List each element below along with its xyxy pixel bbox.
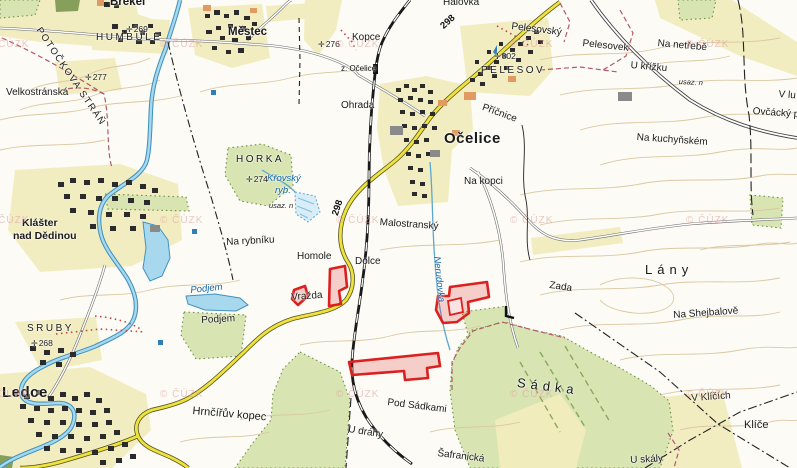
- map-label-ohrada: Ohrada: [341, 101, 374, 111]
- elevation-value: 302: [502, 51, 516, 61]
- map-label-horka: HORKA: [236, 155, 284, 165]
- map-label-podjem: Podjem: [190, 283, 223, 296]
- cuzk-watermark: © ČÚZK: [686, 390, 729, 400]
- cuzk-watermark: © ČÚZK: [336, 40, 379, 50]
- cuzk-watermark: © ČÚZK: [510, 40, 553, 50]
- map-label-hrn-v-kopec: Hrnčířův kopec: [192, 406, 267, 423]
- map-label-pelesovek: Pelesovek: [582, 39, 629, 54]
- elevation-value: 274: [254, 174, 268, 184]
- cuzk-watermark: © ČÚZK: [0, 390, 29, 400]
- cuzk-watermark: © ČÚZK: [160, 40, 203, 50]
- elevation-value: 269: [134, 24, 148, 34]
- map-label-nerudovka: Nerudovka: [432, 256, 446, 303]
- cuzk-watermark: © ČÚZK: [686, 216, 729, 226]
- map-label-na-kuchy-sk-m: Na kuchyňském: [636, 133, 708, 148]
- map-label-vra-da: Vražda: [291, 291, 323, 303]
- cuzk-watermark: © ČÚZK: [160, 216, 203, 226]
- map-label-p-nice: Příčnice: [481, 103, 518, 125]
- elevation-cross-icon: ✛: [85, 73, 92, 82]
- map-label-usaz-n: usaz. n: [679, 78, 704, 87]
- map-label-humbule: HUMBULE: [96, 33, 162, 43]
- map-label-halovka: Halovka: [443, 0, 479, 8]
- map-label-m-stec: Městec: [228, 27, 267, 39]
- elevation-point-268: ✛268: [31, 339, 53, 348]
- map-label-afranick: Šafranická: [437, 449, 485, 465]
- cuzk-watermark: © ČÚZK: [0, 40, 29, 50]
- elevation-cross-icon: ✛: [318, 40, 325, 49]
- map-label-na-rybn-ku: Na rybníku: [226, 235, 275, 248]
- elevation-value: 268: [39, 338, 53, 348]
- map-label-podjem: Podjem: [201, 314, 235, 326]
- map-label-usaz-n: usaz. n: [269, 202, 293, 210]
- cuzk-watermark: © ČÚZK: [510, 216, 553, 226]
- map-label-pelesovsk: Pelesovský: [511, 22, 562, 38]
- elevation-cross-icon: ✛: [494, 52, 501, 61]
- map-label-sruby: SRUBY: [27, 324, 74, 334]
- elevation-cross-icon: ✛: [31, 339, 38, 348]
- cuzk-watermark: © ČÚZK: [686, 40, 729, 50]
- cuzk-watermark: © ČÚZK: [160, 390, 203, 400]
- map-label-u-k-ku: U křížku: [630, 61, 667, 74]
- map-viewport[interactable]: BrekelHUMBULEMěstecPOTOČKOVA STRÁŇVelkos…: [0, 0, 797, 468]
- map-label-na-kopci: Na kopci: [464, 177, 503, 187]
- elevation-point-277: ✛277: [85, 73, 107, 82]
- map-label-malostransk: Malostranský: [379, 218, 438, 232]
- map-label-v-lu: V lu: [778, 90, 796, 101]
- elevation-point-302: ✛302: [494, 52, 516, 61]
- map-label-velkostr-nsk: Velkostránská: [6, 88, 68, 98]
- cuzk-watermark: © ČÚZK: [0, 216, 29, 226]
- map-label-kl-e: Klíče: [744, 420, 768, 431]
- elevation-value: 277: [93, 72, 107, 82]
- map-label-zada: Zada: [549, 281, 573, 294]
- cuzk-watermark: © ČÚZK: [510, 390, 553, 400]
- map-label-l-ny: Lány: [645, 263, 693, 276]
- map-label-pod-s-dkami: Pod Sádkami: [387, 398, 447, 415]
- map-label-pelesov: PELESOV: [481, 66, 545, 76]
- map-label-brekel: Brekel: [110, 0, 145, 9]
- elevation-cross-icon: ✛: [126, 25, 133, 34]
- map-label-ryb: ryb.: [275, 186, 291, 196]
- road-number-298-0: 298: [439, 13, 457, 31]
- map-label-k-ovsk: Křovský: [267, 174, 301, 184]
- elevation-cross-icon: ✛: [246, 175, 253, 184]
- cuzk-watermark: © ČÚZK: [336, 390, 379, 400]
- map-labels-layer: BrekelHUMBULEMěstecPOTOČKOVA STRÁŇVelkos…: [0, 0, 797, 468]
- elevation-point-274: ✛274: [246, 175, 268, 184]
- map-label-na-shejbalov: Na Shejbalově: [673, 306, 739, 321]
- map-label-z-o-elice: z. Očelice: [341, 65, 376, 73]
- elevation-point-269: ✛269: [126, 25, 148, 34]
- map-label-nad-d-dinou: nad Dědinou: [13, 231, 77, 242]
- map-label-u-dr-hy: U dráhy: [347, 425, 383, 440]
- map-label-homole: Homole: [297, 252, 331, 262]
- map-label-dolce: Dolce: [355, 257, 381, 267]
- map-label-u-sk-ly: U skály: [630, 454, 663, 466]
- cuzk-watermark: © ČÚZK: [336, 216, 379, 226]
- map-label-ov-ck-p: Ovčácký p: [752, 107, 797, 120]
- map-label-o-elice: Očelice: [444, 131, 501, 146]
